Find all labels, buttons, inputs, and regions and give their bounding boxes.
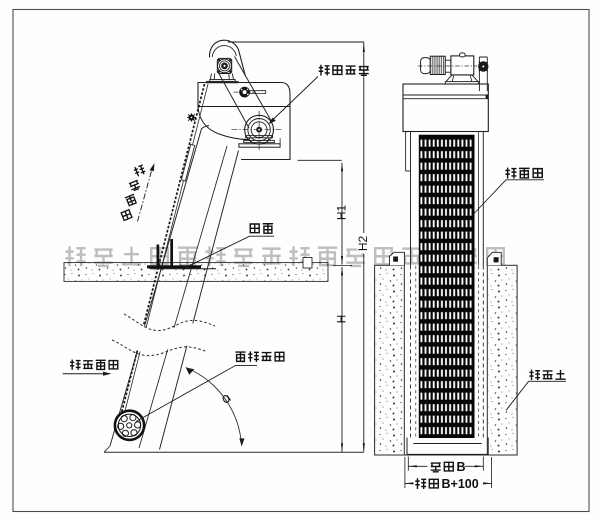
- svg-text:H2: H2: [356, 236, 370, 252]
- svg-text:H: H: [335, 315, 349, 324]
- svg-text:B: B: [457, 460, 466, 474]
- svg-text:H1: H1: [335, 205, 349, 221]
- svg-text:B+100: B+100: [442, 477, 479, 491]
